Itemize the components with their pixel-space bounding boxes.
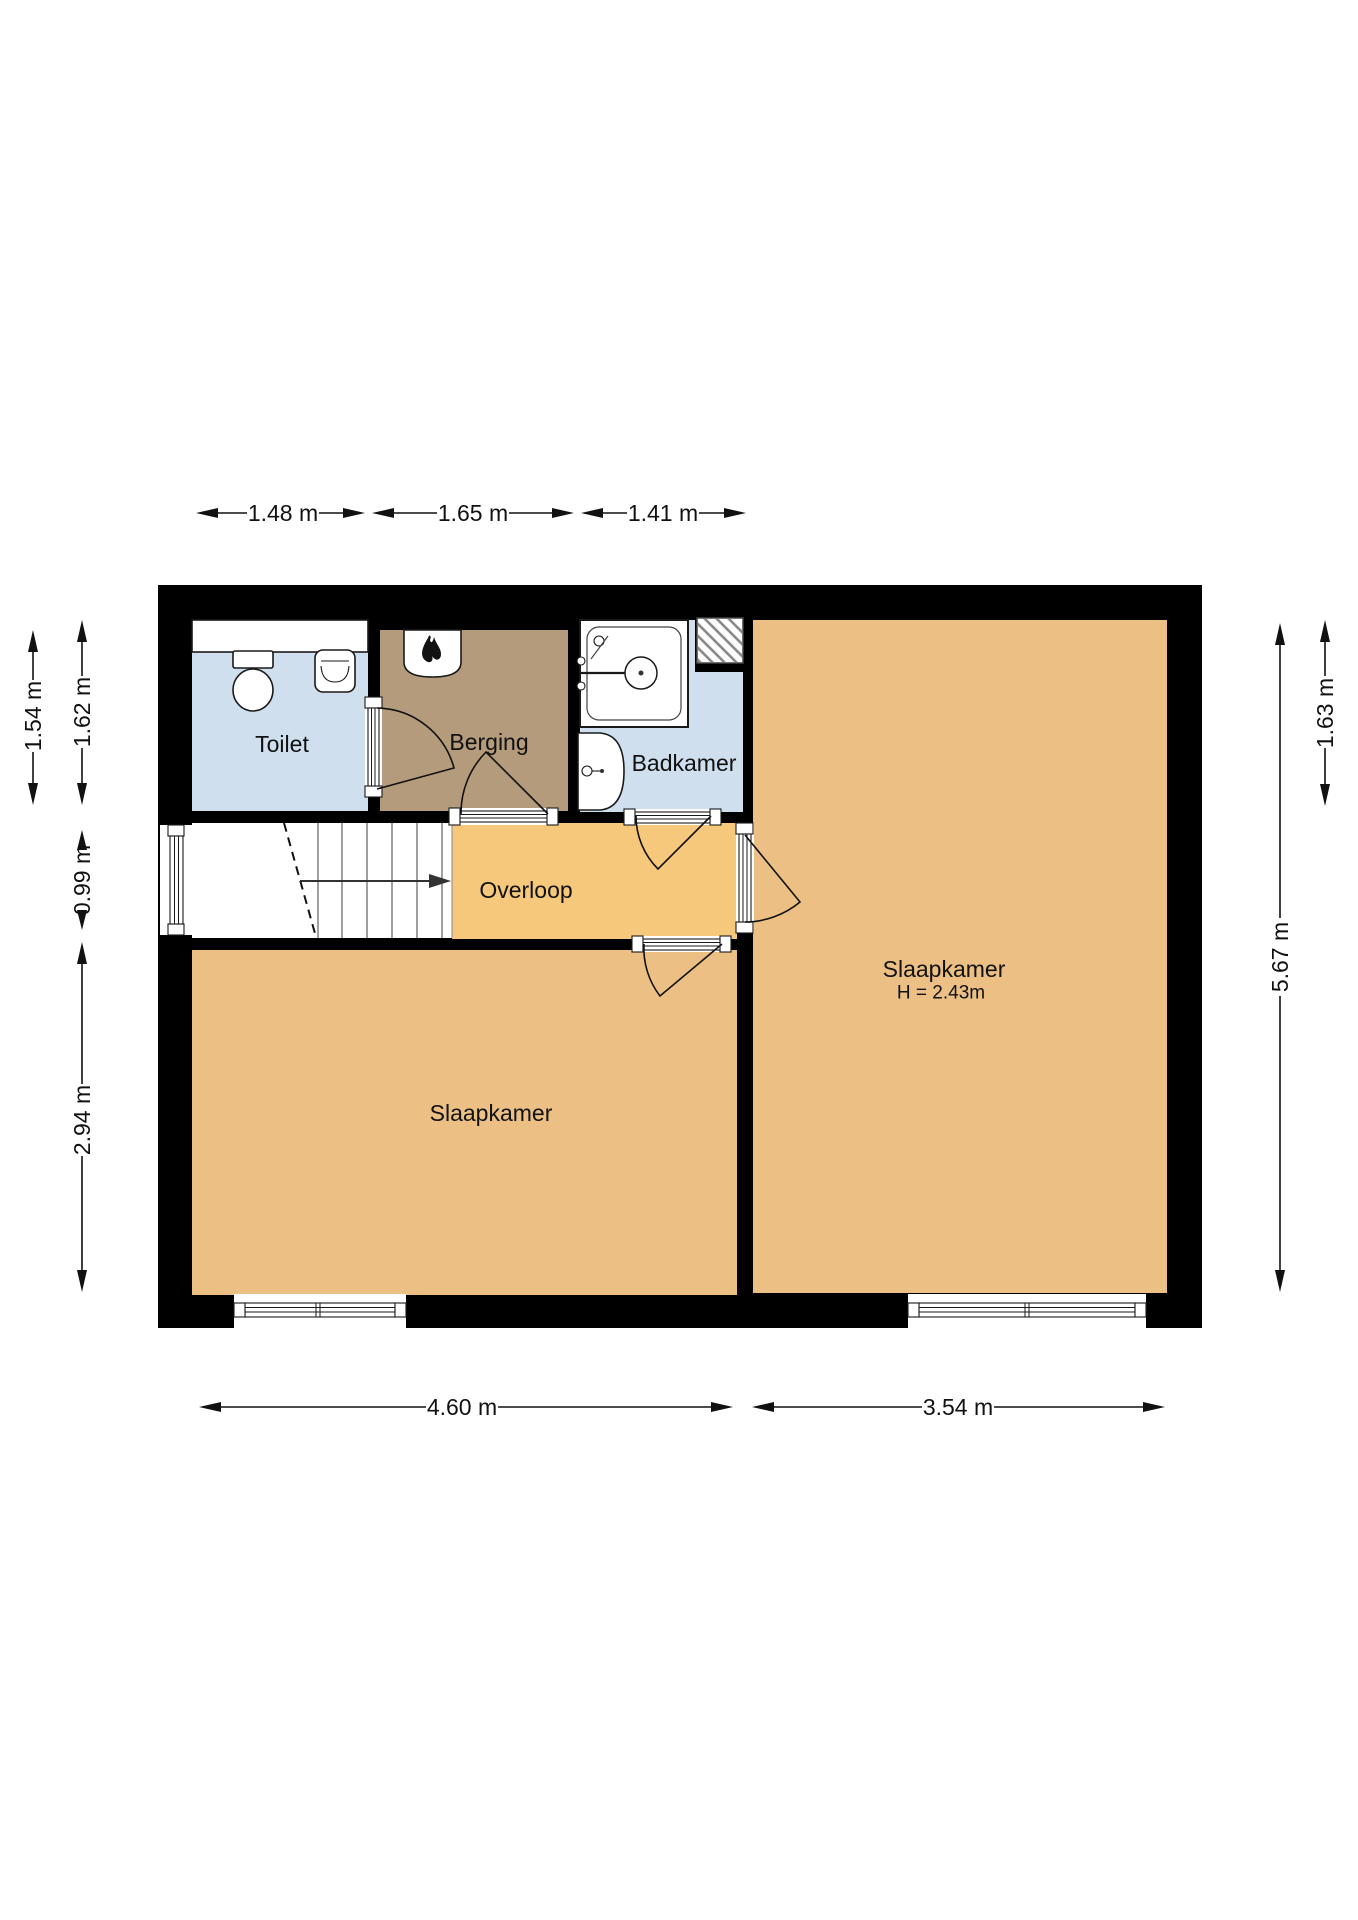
floorplan-page: Toilet Berging Badkamer Overloop Slaapka… (0, 0, 1358, 1920)
berging-label: Berging (449, 729, 528, 755)
window-bottom-left (234, 1294, 406, 1328)
dim-bottom-left: 4.60 m (427, 1394, 497, 1420)
dimensions-bottom: 4.60 m 3.54 m (199, 1394, 1165, 1420)
dim-top-badkamer: 1.41 m (628, 500, 698, 526)
dimensions-top: 1.48 m 1.65 m 1.41 m (196, 500, 746, 526)
window-bottom-right (908, 1294, 1146, 1328)
dim-top-toilet: 1.48 m (248, 500, 318, 526)
dim-bottom-right: 3.54 m (923, 1394, 993, 1420)
floorplan-drawing: Toilet Berging Badkamer Overloop Slaapka… (0, 0, 1358, 1920)
toilet-label: Toilet (255, 731, 309, 757)
dim-left-berging-depth: 1.54 m (20, 681, 46, 751)
overloop-label: Overloop (479, 877, 572, 903)
dim-right-slaapkamer: 5.67 m (1267, 922, 1293, 992)
washbasin-icon (578, 733, 624, 810)
dim-left-slaapkamer: 2.94 m (69, 1085, 95, 1155)
slaapkamer-left-label: Slaapkamer (430, 1100, 553, 1126)
slaapkamer-right-label: Slaapkamer (883, 956, 1006, 982)
slaapkamer-right-height-note: H = 2.43m (897, 983, 985, 1004)
dim-right-badkamer-depth: 1.63 m (1312, 678, 1338, 748)
washbasin-icon (315, 650, 355, 692)
toilet-bowl-icon (233, 651, 273, 711)
counter-icon (192, 620, 368, 652)
boiler (404, 630, 461, 677)
dimensions-left: 1.54 m 1.62 m 0.99 m 2.94 m (20, 620, 95, 1292)
window-left-wall (160, 825, 192, 935)
dim-left-toilet-depth: 1.62 m (69, 677, 95, 747)
badkamer-label: Badkamer (632, 750, 737, 776)
dimensions-right: 1.63 m 5.67 m (1267, 620, 1338, 1292)
dim-top-berging: 1.65 m (438, 500, 508, 526)
shower-icon (577, 620, 688, 727)
dim-left-stairs: 0.99 m (69, 845, 95, 915)
